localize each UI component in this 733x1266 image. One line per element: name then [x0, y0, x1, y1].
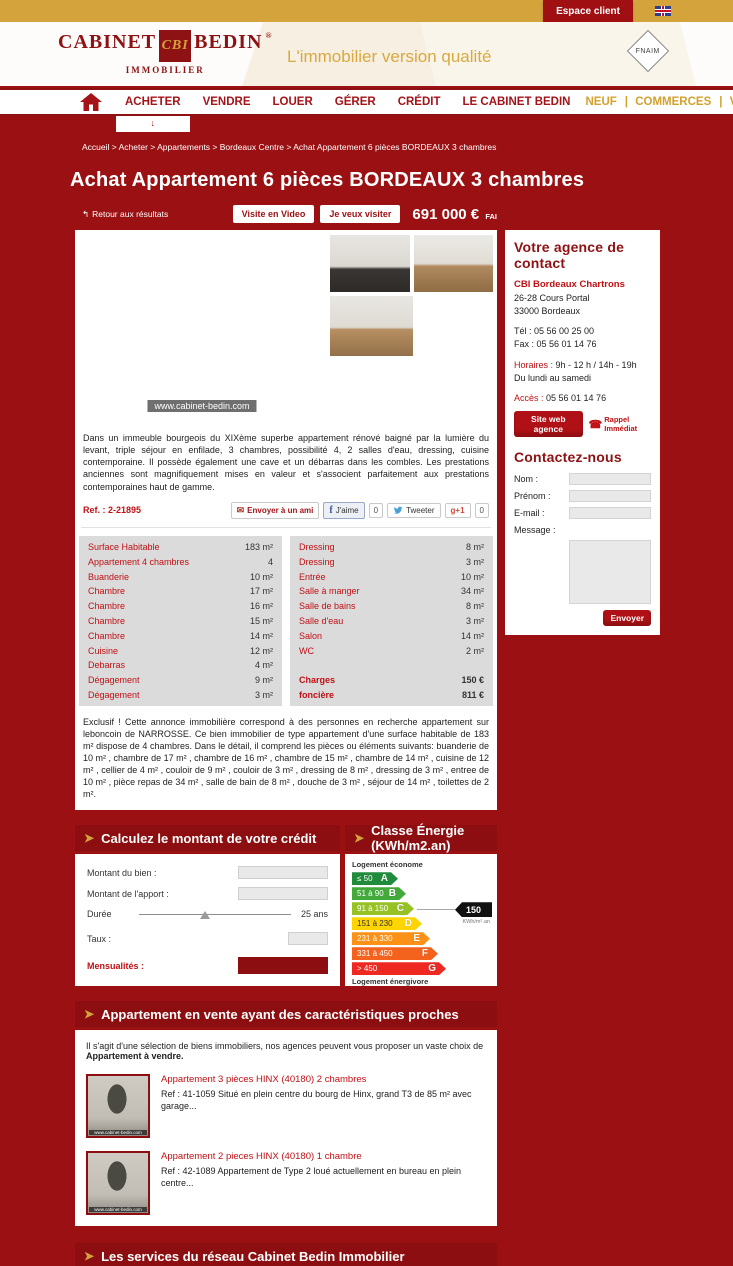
- nav-item[interactable]: ACHETER ↓: [114, 90, 192, 114]
- energy-band: 331 à 450 F: [352, 947, 438, 960]
- send-to-friend-button[interactable]: ✉ Envoyer à un ami: [231, 502, 320, 519]
- energy-band-range: 151 à 230: [357, 919, 393, 928]
- share-buttons: ✉ Envoyer à un ami f J'aime 0 Tweeter: [231, 502, 489, 519]
- phone-icon: ☎: [589, 418, 603, 431]
- energy-band-range: 91 à 150: [357, 904, 388, 913]
- table-row: Entrée 10 m²: [290, 569, 493, 584]
- similar-property-link[interactable]: Appartement 3 pièces HINX (40180) 2 cham…: [161, 1074, 486, 1085]
- back-arrow-icon: ↰: [82, 209, 89, 220]
- energy-band-letter: D: [405, 918, 412, 929]
- video-visit-button[interactable]: Visite en Video: [233, 205, 315, 223]
- logo-cabinet-text: CABINET: [58, 31, 156, 54]
- details-tables: Surface Habitable 183 m² Appartement 4 c…: [79, 536, 493, 707]
- listing-panel: www.cabinet-bedin.com Dans un immeuble b…: [75, 230, 497, 810]
- row-value: 4: [268, 557, 273, 567]
- similar-intro-bold: Appartement à vendre.: [86, 1051, 184, 1061]
- message-textarea[interactable]: [569, 540, 651, 604]
- address-line-1: 26-28 Cours Portal: [514, 292, 651, 305]
- table-row: Dressing 8 m²: [290, 540, 493, 555]
- row-label: Chambre: [88, 601, 125, 611]
- deposit-label: Montant de l'apport :: [87, 889, 199, 899]
- table-row: WC 2 m²: [290, 643, 493, 658]
- row-value: 14 m²: [250, 631, 273, 641]
- uk-flag-icon[interactable]: [655, 6, 671, 16]
- back-to-results-link[interactable]: ↰ Retour aux résultats: [75, 209, 168, 220]
- row-label: Buanderie: [88, 572, 129, 582]
- energy-band: ≤ 50 A: [352, 872, 398, 885]
- row-value: 3 m²: [255, 690, 273, 700]
- photo-thumbnails: [330, 235, 493, 421]
- facebook-icon: f: [329, 505, 332, 516]
- row-value: 3 m²: [466, 557, 484, 567]
- table-row: Dressing 3 m²: [290, 555, 493, 570]
- hours-label: Horaires :: [514, 360, 553, 370]
- nav-item[interactable]: CRÉDIT ↓: [387, 90, 452, 114]
- rate-label: Taux :: [87, 934, 199, 944]
- credit-section-title: Calculez le montant de votre crédit: [101, 831, 316, 846]
- slider-track: [139, 914, 291, 915]
- energy-band: 91 à 150 C: [352, 902, 414, 915]
- row-value: 2 m²: [466, 646, 484, 656]
- row-value: 12 m²: [250, 646, 273, 656]
- breadcrumb-item[interactable]: Bordeaux Centre: [210, 142, 284, 152]
- similar-intro: Il s'agit d'une sélection de biens immob…: [86, 1041, 486, 1061]
- arrow-icon: ➤: [84, 1249, 94, 1263]
- monthly-payment-label: Mensualités :: [87, 961, 199, 971]
- similar-property-item: www.cabinet-bedin.com Appartement 2 piec…: [86, 1151, 486, 1215]
- table-row: Debarras 4 m²: [79, 658, 282, 673]
- nav-item[interactable]: LE CABINET BEDIN ↓: [452, 90, 582, 114]
- nav-item-gold[interactable]: VACANCES: [715, 96, 733, 108]
- site-header: CABINET CBI BEDIN ® IMMOBILIER L'immobil…: [0, 22, 733, 88]
- energy-bottom-label: Logement énergivore: [352, 977, 490, 986]
- row-value: 34 m²: [461, 586, 484, 596]
- table-row: Salle de bains 8 m²: [290, 599, 493, 614]
- callback-label: Rappel Immédiat: [604, 415, 651, 433]
- contact-form-title: Contactez-nous: [514, 449, 651, 465]
- energy-band-letter: B: [389, 888, 396, 899]
- similar-property-photo[interactable]: www.cabinet-bedin.com: [86, 1151, 150, 1215]
- home-icon[interactable]: [80, 93, 102, 111]
- table-row: Salle d'eau 3 m²: [290, 614, 493, 629]
- actions-row: ↰ Retour aux résultats Visite en Video J…: [75, 205, 497, 223]
- energy-band-letter: A: [381, 873, 388, 884]
- row-label: Dressing: [299, 557, 335, 567]
- agency-tel: Tél : 05 56 00 25 00: [514, 325, 651, 338]
- row-label: foncière: [299, 690, 334, 700]
- amount-label: Montant du bien :: [87, 868, 199, 878]
- agency-access: Accès : 05 56 01 14 76: [514, 393, 651, 403]
- photo-thumbnail[interactable]: [330, 235, 410, 292]
- google-plus-count: 0: [475, 503, 489, 518]
- property-description: Dans un immeuble bourgeois du XIXème sup…: [83, 432, 489, 493]
- row-label: Salle d'eau: [299, 616, 343, 626]
- name-input[interactable]: [569, 473, 651, 485]
- row-value: 15 m²: [250, 616, 273, 626]
- similar-properties-panel: Il s'agit d'une sélection de biens immob…: [75, 1030, 497, 1226]
- row-value: 183 m²: [245, 542, 273, 552]
- reference-number: Ref. : 2-21895: [83, 505, 141, 515]
- similar-property-desc: Ref : 42-1089 Appartement de Type 2 loué…: [161, 1166, 486, 1189]
- message-label: Message :: [514, 524, 562, 535]
- price: 691 000 € FAI: [412, 206, 497, 223]
- energy-band: > 450 G: [352, 962, 446, 975]
- access-value: 05 56 01 14 76: [544, 393, 607, 403]
- breadcrumb-item[interactable]: Acheter: [109, 142, 148, 152]
- table-row: Surface Habitable 183 m²: [79, 540, 282, 555]
- name-label: Nom :: [514, 473, 562, 484]
- like-label: J'aime: [336, 506, 359, 515]
- table-row: Cuisine 12 m²: [79, 643, 282, 658]
- nav-item[interactable]: VENDRE ↓: [192, 90, 262, 114]
- main-column: www.cabinet-bedin.com Dans un immeuble b…: [75, 230, 497, 1266]
- agency-hours: Horaires : 9h - 12 h / 14h - 19h Du lund…: [514, 359, 651, 385]
- table-row: Chambre 16 m²: [79, 599, 282, 614]
- table-row: Charges 150 €: [290, 673, 493, 688]
- row-label: Debarras: [88, 660, 125, 670]
- tagline: L'immobilier version qualité: [287, 47, 492, 67]
- row-label: Chambre: [88, 631, 125, 641]
- energy-band-range: 51 à 90: [357, 889, 384, 898]
- energy-top-label: Logement économe: [352, 860, 490, 869]
- similar-items: www.cabinet-bedin.com Appartement 3 pièc…: [86, 1074, 486, 1215]
- table-row: Dégagement 9 m²: [79, 673, 282, 688]
- request-visit-button[interactable]: Je veux visiter: [320, 205, 400, 223]
- nav-item-gold[interactable]: NEUF: [581, 96, 620, 108]
- nav-item-gold[interactable]: COMMERCES: [621, 96, 715, 108]
- table-row: [290, 658, 493, 673]
- duration-value: 25 ans: [301, 909, 328, 919]
- table-row: Appartement 4 chambres 4: [79, 555, 282, 570]
- agency-website-button[interactable]: Site web agence: [514, 411, 583, 437]
- energy-band: 151 à 230 D: [352, 917, 422, 930]
- monthly-payment-display: [238, 957, 328, 974]
- nav-item-label: ACHETER: [125, 96, 181, 108]
- table-row: Dégagement 3 m²: [79, 688, 282, 703]
- nav-item[interactable]: LOUER ↓: [262, 90, 324, 114]
- services-section-header: ➤ Les services du réseau Cabinet Bedin I…: [75, 1243, 497, 1266]
- similar-property-photo[interactable]: www.cabinet-bedin.com: [86, 1074, 150, 1138]
- facebook-like-count: 0: [369, 503, 383, 518]
- row-label: Entrée: [299, 572, 326, 582]
- access-label: Accès :: [514, 393, 544, 403]
- credit-section-header: ➤ Calculez le montant de votre crédit: [75, 825, 340, 851]
- energy-unit: KWh/m².an: [462, 919, 490, 925]
- energy-band-range: > 450: [357, 964, 377, 973]
- nav-item-label: CRÉDIT: [398, 96, 441, 108]
- energy-class-diagram: Logement économe ≤ 50 A 51 à 90 B: [345, 854, 497, 986]
- tweet-label: Tweeter: [406, 506, 434, 515]
- energy-band: 51 à 90 B: [352, 887, 406, 900]
- table-row: Buanderie 10 m²: [79, 569, 282, 584]
- credit-calculator: Montant du bien : Montant de l'apport : …: [75, 854, 340, 986]
- table-row: Chambre 15 m²: [79, 614, 282, 629]
- nav-item-label: LOUER: [273, 96, 313, 108]
- table-row: foncière 811 €: [290, 688, 493, 703]
- photo-watermark: www.cabinet-bedin.com: [89, 1207, 147, 1212]
- duration-label: Durée: [87, 909, 139, 919]
- row-label: Charges: [299, 675, 335, 685]
- similar-property-item: www.cabinet-bedin.com Appartement 3 pièc…: [86, 1074, 486, 1138]
- row-label: Chambre: [88, 616, 125, 626]
- price-value: 691 000 €: [412, 206, 479, 223]
- agency-address: 26-28 Cours Portal 33000 Bordeaux: [514, 292, 651, 317]
- energy-band-range: ≤ 50: [357, 874, 373, 883]
- photo-watermark: www.cabinet-bedin.com: [89, 1130, 147, 1135]
- energy-band-letter: G: [428, 963, 436, 974]
- price-suffix: FAI: [485, 212, 497, 221]
- page: Espace client CABINET CBI BEDIN ® IMMOBI…: [0, 0, 733, 1266]
- energy-band-letter: C: [397, 903, 404, 914]
- row-label: Dégagement: [88, 690, 140, 700]
- breadcrumb: AccueilAcheterAppartementsBordeaux Centr…: [82, 142, 660, 152]
- breadcrumb-item[interactable]: Achat Appartement 6 pièces BORDEAUX 3 ch…: [284, 142, 496, 152]
- logo-cbi-icon: CBI: [159, 30, 191, 62]
- nav-right: NEUF COMMERCES VACANCES: [581, 96, 733, 108]
- logo-bedin-text: BEDIN: [194, 31, 262, 54]
- similar-property-desc: Ref : 41-1059 Situé en plein centre du b…: [161, 1089, 486, 1112]
- energy-section-title: Classe Énergie (KWh/m2.an): [371, 823, 488, 853]
- breadcrumb-item[interactable]: Accueil: [82, 142, 109, 152]
- similar-section-header: ➤ Appartement en vente ayant des caracté…: [75, 1001, 497, 1027]
- slider-handle[interactable]: [200, 911, 210, 919]
- photo-thumbnail[interactable]: [414, 235, 493, 292]
- similar-section-title: Appartement en vente ayant des caractéri…: [101, 1007, 459, 1022]
- nav-item-label: GÉRER: [335, 96, 376, 108]
- row-value: 150 €: [461, 675, 484, 685]
- services-section-title: Les services du réseau Cabinet Bedin Imm…: [101, 1249, 404, 1264]
- row-label: WC: [299, 646, 314, 656]
- energy-band-range: 231 à 330: [357, 934, 393, 943]
- row-label: Salle de bains: [299, 601, 356, 611]
- photo-gallery: www.cabinet-bedin.com: [79, 235, 493, 421]
- energy-band-letter: F: [422, 948, 428, 959]
- reference-row: Ref. : 2-21895 ✉ Envoyer à un ami f J'ai…: [83, 502, 489, 519]
- row-value: 14 m²: [461, 631, 484, 641]
- row-label: Cuisine: [88, 646, 118, 656]
- similar-property-info: Appartement 2 pieces HINX (40180) 1 cham…: [161, 1151, 486, 1215]
- google-plus-one-button[interactable]: g+1: [445, 503, 471, 518]
- nav-items: ACHETER ↓ VENDRE ↓ LOUER ↓ GÉRER ↓: [114, 90, 581, 114]
- row-label: Dressing: [299, 542, 335, 552]
- row-value: 10 m²: [461, 572, 484, 582]
- row-value: 4 m²: [255, 660, 273, 670]
- amount-input[interactable]: [238, 866, 328, 879]
- energy-value-tag: 150: [455, 902, 492, 917]
- top-bar: Espace client: [0, 0, 733, 22]
- photo-watermark: www.cabinet-bedin.com: [147, 400, 256, 412]
- breadcrumb-item[interactable]: Appartements: [148, 142, 210, 152]
- nav-item-label: VENDRE: [203, 96, 251, 108]
- registered-mark: ®: [266, 31, 273, 41]
- row-label: Chambre: [88, 586, 125, 596]
- duration-slider[interactable]: [139, 908, 291, 920]
- row-value: 16 m²: [250, 601, 273, 611]
- table-row: Salon 14 m²: [290, 628, 493, 643]
- details-table-right: Dressing 8 m² Dressing 3 m² Entrée: [290, 536, 493, 707]
- espace-client-button[interactable]: Espace client: [543, 0, 633, 22]
- row-label: Surface Habitable: [88, 542, 160, 552]
- energy-section-header: ➤ Classe Énergie (KWh/m2.an): [345, 825, 497, 851]
- send-to-friend-label: Envoyer à un ami: [247, 506, 313, 515]
- row-value: 8 m²: [466, 601, 484, 611]
- table-row: Chambre 14 m²: [79, 628, 282, 643]
- envelope-icon: ✉: [237, 505, 245, 516]
- fnaim-text: FNAIM: [636, 48, 660, 55]
- firstname-label: Prénom :: [514, 490, 562, 501]
- email-label: E-mail :: [514, 507, 562, 518]
- hours-days: Du lundi au samedi: [514, 372, 651, 385]
- twitter-bird-icon: [393, 506, 403, 515]
- google-plus-icon: g+1: [451, 506, 465, 515]
- row-value: 10 m²: [250, 572, 273, 582]
- row-value: 9 m²: [255, 675, 273, 685]
- energy-band: 231 à 330 E: [352, 932, 430, 945]
- details-table-left: Surface Habitable 183 m² Appartement 4 c…: [79, 536, 282, 707]
- nav-item[interactable]: GÉRER ↓: [324, 90, 387, 114]
- agency-title: Votre agence de contact: [514, 239, 651, 271]
- nav-item-label: LE CABINET BEDIN: [463, 96, 571, 108]
- rate-input[interactable]: [288, 932, 328, 945]
- deposit-input[interactable]: [238, 887, 328, 900]
- arrow-icon: ➤: [354, 831, 364, 845]
- row-value: 8 m²: [466, 542, 484, 552]
- photo-thumbnail[interactable]: [330, 296, 413, 356]
- facebook-like-button[interactable]: f J'aime: [323, 502, 364, 519]
- arrow-icon: ➤: [84, 1007, 94, 1021]
- main-photo[interactable]: www.cabinet-bedin.com: [79, 235, 325, 421]
- back-link-label: Retour aux résultats: [92, 209, 168, 219]
- agency-phones: Tél : 05 56 00 25 00 Fax : 05 56 01 14 7…: [514, 325, 651, 351]
- exclusif-text: Exclusif ! Cette annonce immobilière cor…: [83, 717, 489, 801]
- energy-band-letter: E: [413, 933, 420, 944]
- agency-name-link[interactable]: CBI Bordeaux Chartrons: [514, 279, 651, 290]
- energy-pointer-line: [417, 909, 455, 910]
- address-line-2: 33000 Bordeaux: [514, 305, 651, 318]
- logo[interactable]: CABINET CBI BEDIN ® IMMOBILIER: [58, 31, 272, 75]
- divider: [81, 527, 491, 528]
- energy-band-range: 331 à 450: [357, 949, 393, 958]
- firstname-input[interactable]: [569, 490, 651, 502]
- agency-sidebar: Votre agence de contact CBI Bordeaux Cha…: [505, 230, 660, 635]
- row-label: Appartement 4 chambres: [88, 557, 189, 567]
- send-button[interactable]: Envoyer: [603, 610, 651, 626]
- email-input[interactable]: [569, 507, 651, 519]
- similar-property-info: Appartement 3 pièces HINX (40180) 2 cham…: [161, 1074, 486, 1138]
- row-label: Dégagement: [88, 675, 140, 685]
- row-value: 3 m²: [466, 616, 484, 626]
- row-value: 17 m²: [250, 586, 273, 596]
- row-value: 811 €: [462, 690, 484, 700]
- callback-link[interactable]: ☎ Rappel Immédiat: [589, 415, 651, 433]
- row-label: Salle à manger: [299, 586, 360, 596]
- similar-property-link[interactable]: Appartement 2 pieces HINX (40180) 1 cham…: [161, 1151, 486, 1162]
- tweet-button[interactable]: Tweeter: [387, 503, 440, 518]
- table-row: Chambre 17 m²: [79, 584, 282, 599]
- main-nav: ACHETER ↓ VENDRE ↓ LOUER ↓ GÉRER ↓: [0, 88, 733, 116]
- hours-value: 9h - 12 h / 14h - 19h: [553, 360, 637, 370]
- row-label: Salon: [299, 631, 322, 641]
- logo-immobilier-text: IMMOBILIER: [58, 65, 272, 75]
- page-title: Achat Appartement 6 pièces BORDEAUX 3 ch…: [70, 169, 660, 192]
- arrow-icon: ➤: [84, 831, 94, 845]
- agency-fax: Fax : 05 56 01 14 76: [514, 338, 651, 351]
- active-tab-indicator: ↓: [116, 116, 190, 132]
- table-row: Salle à manger 34 m²: [290, 584, 493, 599]
